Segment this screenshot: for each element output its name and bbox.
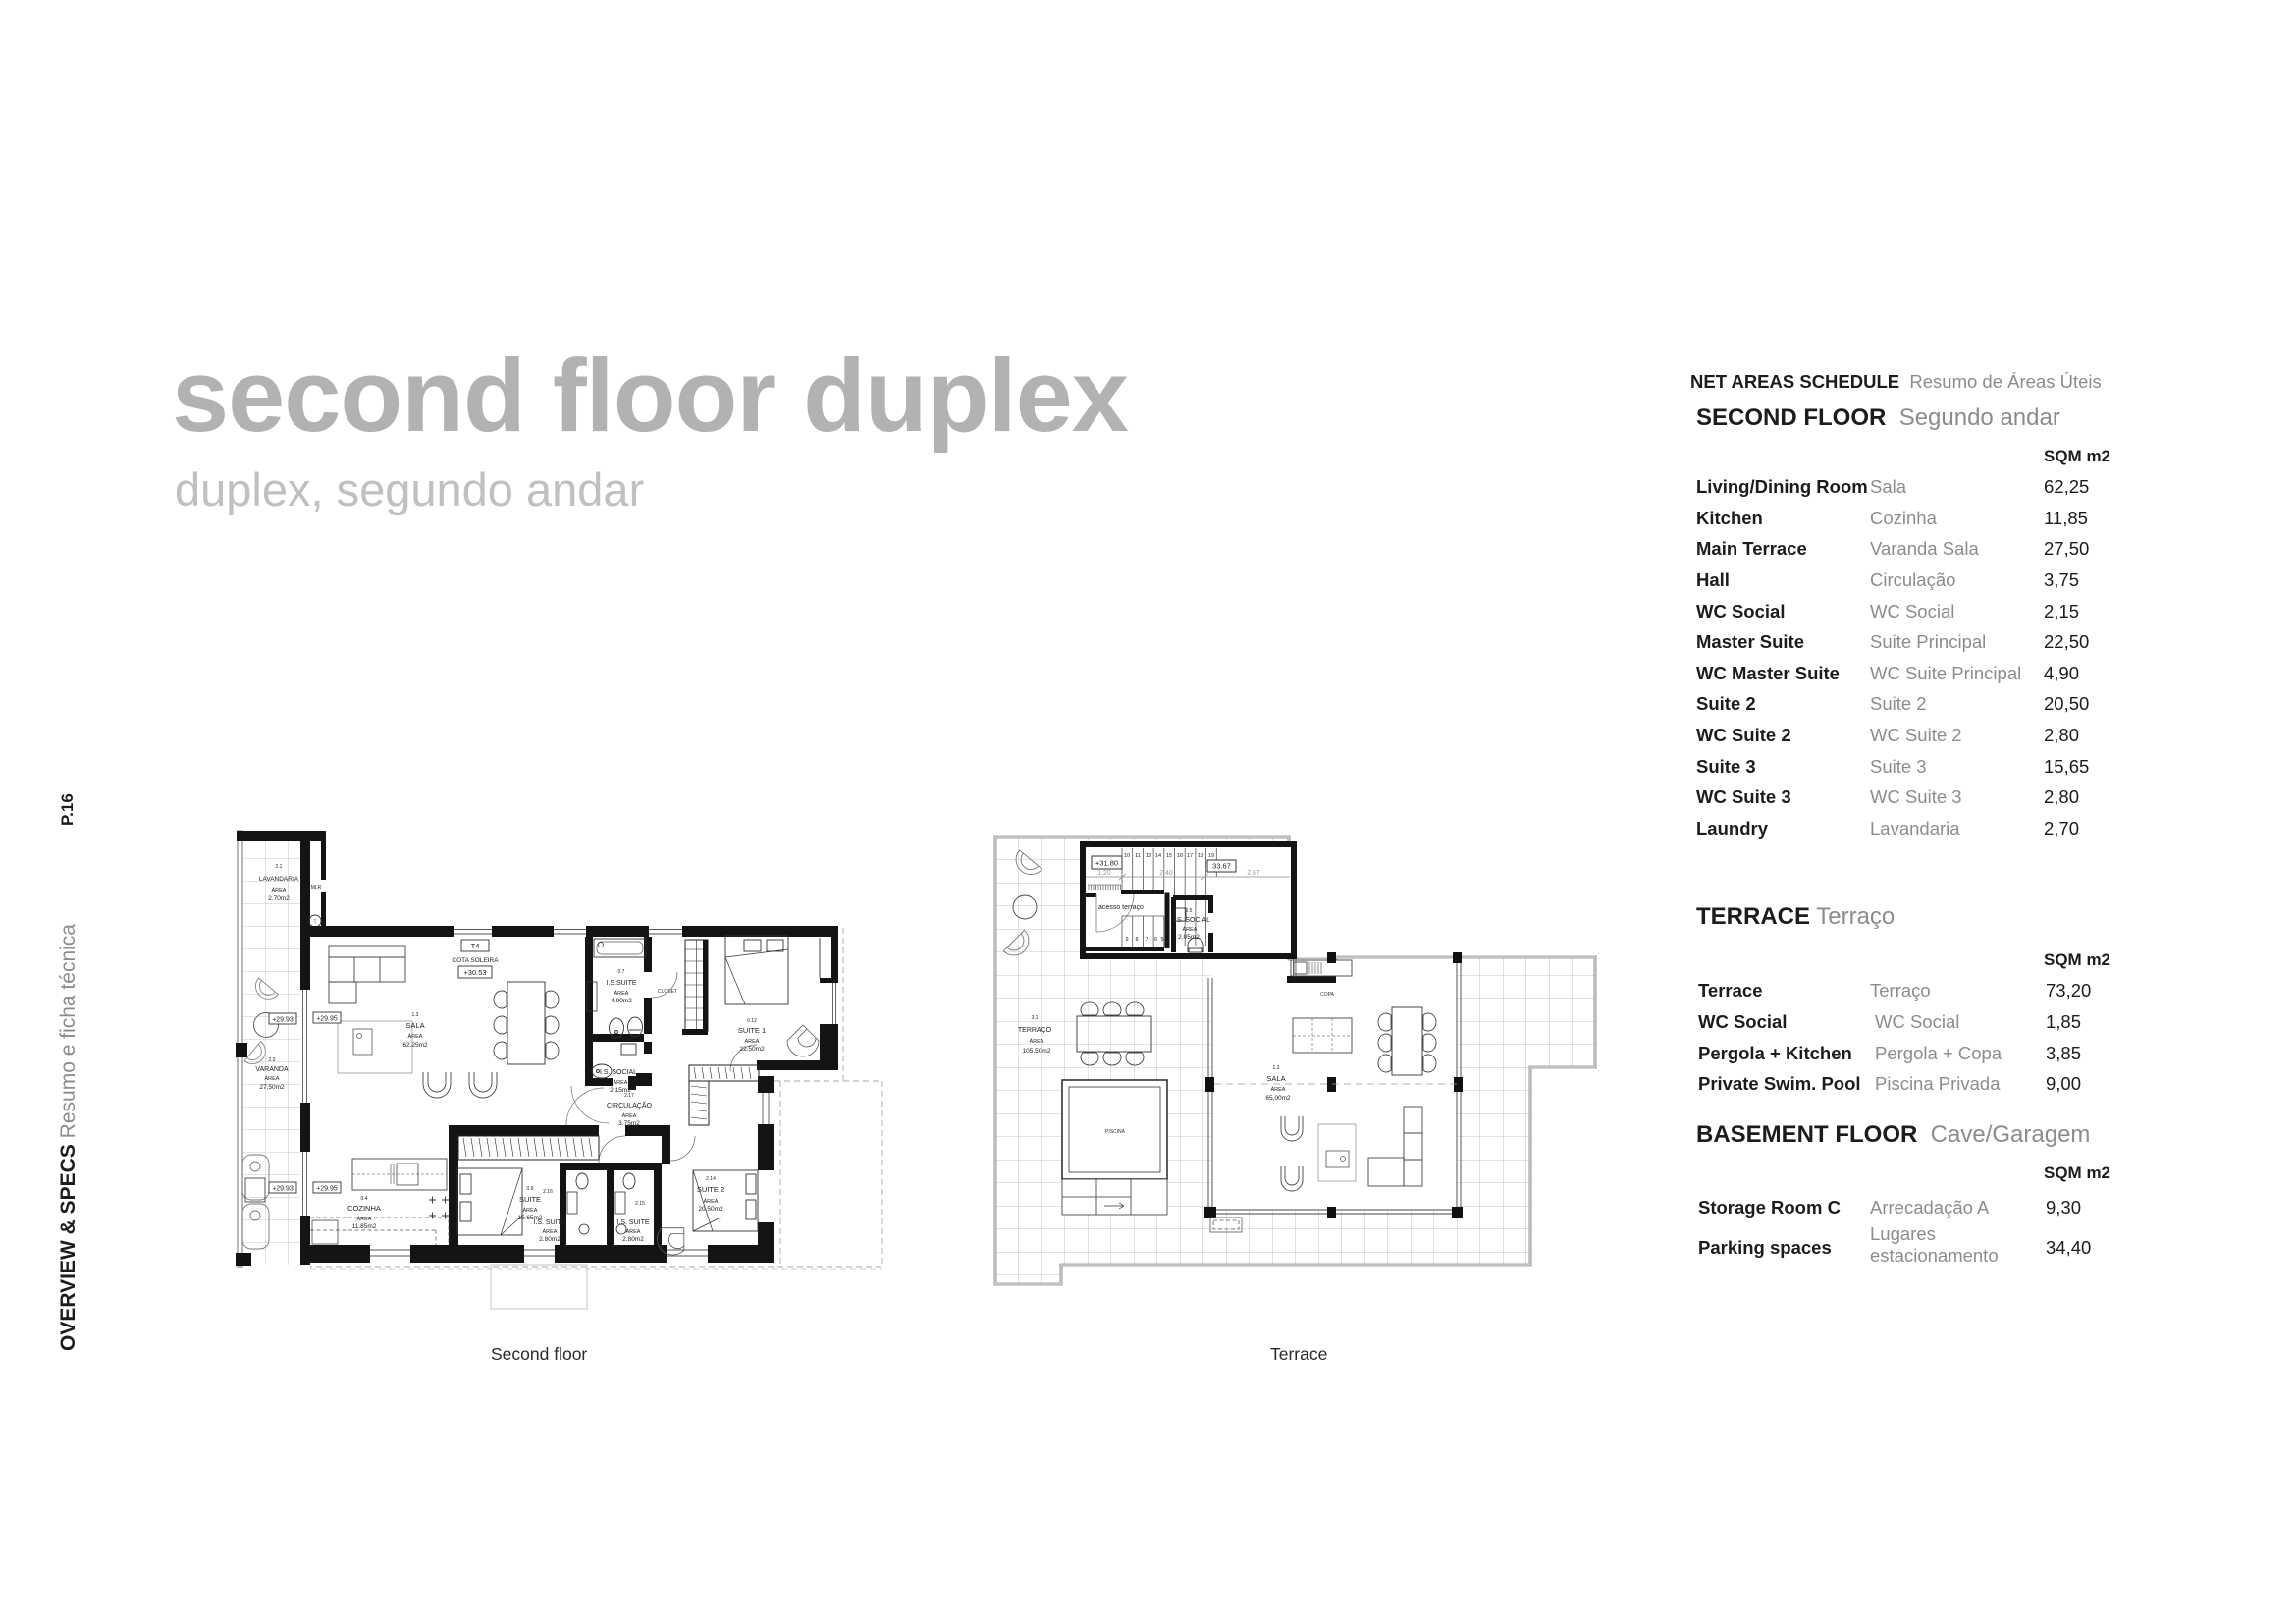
svg-text:MLR: MLR: [311, 885, 322, 891]
svg-text:I.S. SUITE: I.S. SUITE: [533, 1219, 565, 1226]
svg-text:2.05m2: 2.05m2: [1178, 934, 1200, 941]
svg-text:17: 17: [1187, 853, 1193, 859]
svg-text:I.S. SOCIAL: I.S. SOCIAL: [1173, 917, 1210, 924]
svg-text:7: 7: [1145, 937, 1148, 943]
svg-text:I.S.SUITE: I.S.SUITE: [606, 980, 636, 987]
svg-text:ÁREA: ÁREA: [614, 990, 629, 997]
svg-text:ÁREA: ÁREA: [1183, 926, 1198, 933]
svg-text:COTA SOLEIRA: COTA SOLEIRA: [452, 957, 499, 964]
svg-text:I.S. SOCIAL: I.S. SOCIAL: [600, 1069, 637, 1076]
svg-text:SUITE: SUITE: [519, 1195, 541, 1204]
svg-text:2.70m2: 2.70m2: [268, 895, 290, 902]
svg-text:ÁREA: ÁREA: [622, 1112, 637, 1119]
svg-text:2.1: 2.1: [276, 864, 283, 870]
svg-text:COZINHA: COZINHA: [347, 1204, 381, 1213]
svg-text:33.67: 33.67: [1212, 862, 1231, 871]
svg-text:16: 16: [1177, 853, 1183, 859]
svg-text:1.20: 1.20: [1097, 870, 1111, 877]
svg-text:62.25m2: 62.25m2: [402, 1042, 428, 1049]
svg-text:ÁREA: ÁREA: [357, 1216, 372, 1222]
svg-text:COPA: COPA: [1320, 992, 1334, 998]
svg-text:0.7: 0.7: [618, 969, 625, 975]
svg-text:0.5: 0.5: [1186, 908, 1193, 914]
svg-text:SUITE 1: SUITE 1: [738, 1026, 766, 1035]
svg-text:ÁREA: ÁREA: [745, 1038, 760, 1045]
svg-text:+29.93: +29.93: [272, 1186, 294, 1193]
svg-text:0.9: 0.9: [527, 1186, 534, 1192]
svg-text:CIRCULAÇÃO: CIRCULAÇÃO: [607, 1101, 652, 1110]
svg-text:13: 13: [1146, 853, 1151, 859]
svg-text:0.12: 0.12: [747, 1018, 757, 1024]
svg-text:+29.93: +29.93: [272, 1017, 294, 1024]
svg-text:11.85m2: 11.85m2: [352, 1223, 377, 1230]
svg-text:ÁREA: ÁREA: [614, 1079, 628, 1086]
svg-text:2.80m2: 2.80m2: [539, 1236, 561, 1243]
svg-text:2.16: 2.16: [543, 1189, 553, 1195]
svg-text:ÁREA: ÁREA: [265, 1075, 280, 1082]
svg-text:SALA: SALA: [405, 1021, 424, 1030]
svg-text:ÁREA: ÁREA: [1271, 1086, 1286, 1093]
svg-text:1.3: 1.3: [412, 1012, 419, 1018]
svg-text:15: 15: [1166, 853, 1172, 859]
svg-text:ÁREA: ÁREA: [704, 1198, 719, 1205]
svg-text:2.17: 2.17: [624, 1093, 634, 1099]
svg-text:+30.53: +30.53: [463, 968, 486, 977]
svg-text:105.50m2: 105.50m2: [1023, 1048, 1051, 1055]
svg-text:SALA: SALA: [1266, 1074, 1285, 1083]
svg-text:8: 8: [1135, 937, 1138, 943]
svg-text:acesso terraço: acesso terraço: [1098, 904, 1144, 911]
svg-text:10: 10: [1124, 853, 1130, 859]
svg-text:22.50m2: 22.50m2: [739, 1046, 765, 1053]
svg-text:VARANDA: VARANDA: [255, 1066, 289, 1073]
svg-text:27.50m2: 27.50m2: [259, 1084, 285, 1091]
svg-text:ÁREA: ÁREA: [543, 1228, 558, 1235]
svg-text:PISCINA: PISCINA: [1105, 1129, 1126, 1135]
svg-text:3.75m2: 3.75m2: [618, 1120, 640, 1127]
svg-text:ÁREA: ÁREA: [626, 1228, 641, 1235]
svg-text:CLOSET: CLOSET: [658, 989, 677, 995]
svg-text:0.4: 0.4: [361, 1196, 368, 1202]
svg-text:9: 9: [1125, 937, 1128, 943]
svg-text:I.S. SUITE: I.S. SUITE: [616, 1219, 649, 1226]
svg-text:18: 18: [1198, 853, 1203, 859]
svg-text:2.14: 2.14: [706, 1176, 716, 1182]
svg-text:11: 11: [1135, 853, 1141, 859]
svg-text:2.15: 2.15: [635, 1201, 645, 1207]
svg-text:2.80m2: 2.80m2: [622, 1236, 644, 1243]
svg-text:ÁREA: ÁREA: [272, 887, 287, 893]
svg-text:3.1: 3.1: [1032, 1015, 1039, 1021]
svg-text:2.67: 2.67: [1247, 870, 1260, 877]
svg-text:+31.80: +31.80: [1095, 859, 1118, 868]
svg-text:SUITE 2: SUITE 2: [697, 1185, 724, 1194]
svg-text:ÁREA: ÁREA: [1030, 1038, 1044, 1045]
svg-text:+29.95: +29.95: [316, 1186, 338, 1193]
svg-text:19: 19: [1208, 853, 1214, 859]
svg-text:1.3: 1.3: [1273, 1065, 1280, 1071]
svg-text:LAVANDARIA: LAVANDARIA: [259, 876, 299, 883]
svg-text:20.50m2: 20.50m2: [698, 1206, 723, 1213]
svg-text:14: 14: [1155, 853, 1161, 859]
svg-text:4.90m2: 4.90m2: [611, 998, 632, 1004]
svg-text:T: T: [313, 920, 316, 926]
svg-text:T4: T4: [471, 942, 480, 950]
svg-text:2.40: 2.40: [1159, 870, 1173, 877]
svg-text:2.3: 2.3: [269, 1057, 276, 1063]
svg-text:ÁREA: ÁREA: [523, 1207, 538, 1214]
svg-text:+29.95: +29.95: [316, 1016, 338, 1023]
svg-text:ÁREA: ÁREA: [408, 1033, 423, 1040]
svg-text:TERRAÇO: TERRAÇO: [1018, 1027, 1052, 1034]
svg-text:6: 6: [1154, 937, 1157, 943]
svg-text:5: 5: [1160, 937, 1163, 943]
svg-text:65,00m2: 65,00m2: [1265, 1095, 1291, 1102]
